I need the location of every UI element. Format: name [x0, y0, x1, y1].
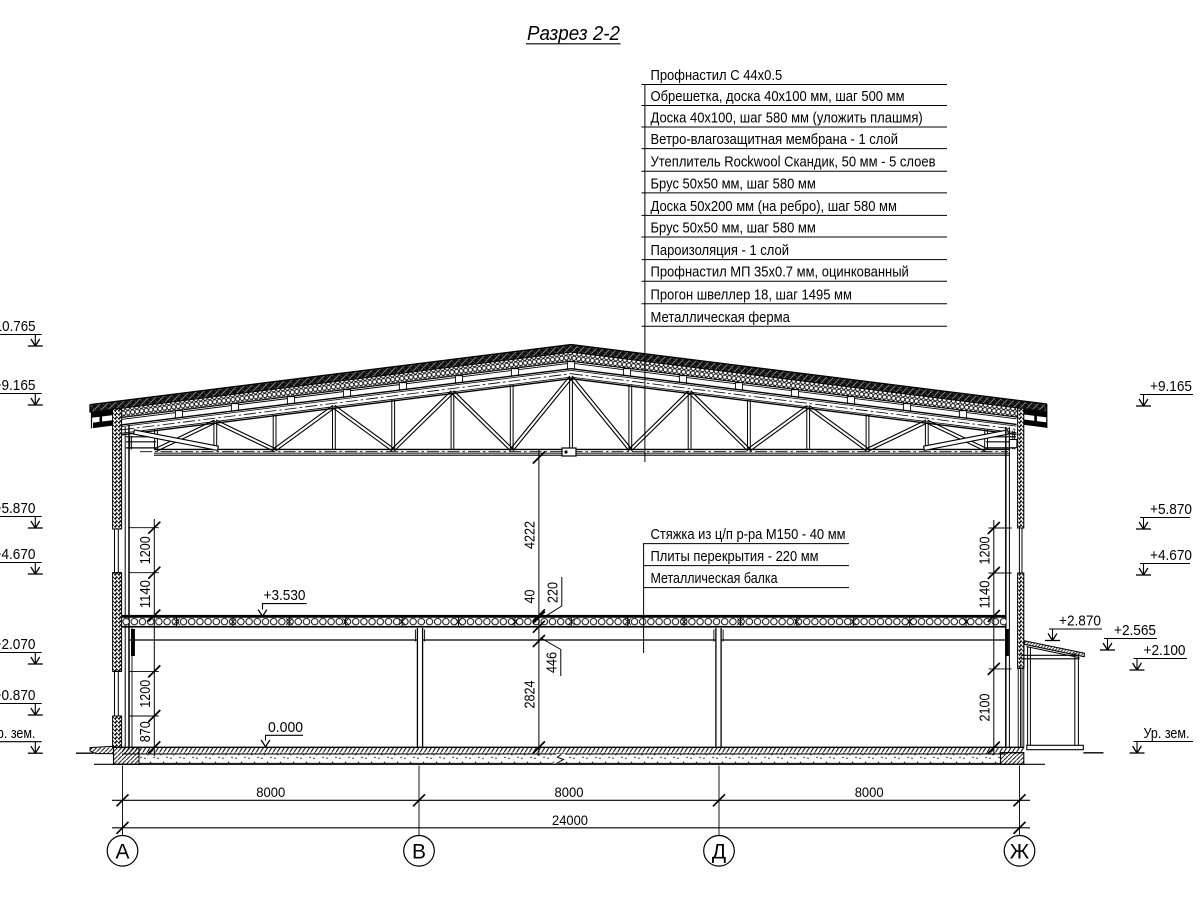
- svg-text:8000: 8000: [855, 784, 884, 800]
- svg-text:+0.870: +0.870: [0, 687, 36, 704]
- svg-text:Ветро-влагозащитная мембрана -: Ветро-влагозащитная мембрана - 1 слой: [651, 131, 899, 148]
- svg-text:1200: 1200: [976, 537, 993, 565]
- svg-text:1200: 1200: [137, 536, 154, 564]
- svg-text:Ур. зем.: Ур. зем.: [1144, 725, 1190, 742]
- svg-text:4222: 4222: [521, 521, 538, 549]
- svg-text:+10.765: +10.765: [0, 318, 36, 335]
- svg-text:+4.670: +4.670: [0, 546, 36, 563]
- svg-text:+2.100: +2.100: [1144, 642, 1186, 659]
- svg-text:1200: 1200: [137, 680, 154, 708]
- svg-text:220: 220: [544, 582, 561, 603]
- svg-text:+4.670: +4.670: [1150, 547, 1192, 564]
- svg-text:Профнастил МП 35х0.7 мм, оцинк: Профнастил МП 35х0.7 мм, оцинкованный: [651, 264, 909, 281]
- svg-text:Разрез 2-2: Разрез 2-2: [527, 23, 620, 45]
- svg-text:Доска 50х200 мм (на ребро), ша: Доска 50х200 мм (на ребро), шаг 580 мм: [651, 198, 897, 215]
- svg-text:+2.870: +2.870: [1059, 613, 1101, 630]
- svg-text:+9.165: +9.165: [0, 377, 36, 394]
- svg-text:8000: 8000: [555, 784, 584, 800]
- svg-text:Брус 50х50 мм, шаг 580 мм: Брус 50х50 мм, шаг 580 мм: [651, 175, 816, 192]
- svg-text:40: 40: [521, 590, 538, 604]
- svg-text:+5.870: +5.870: [0, 500, 36, 517]
- svg-text:Брус 50х50 мм, шаг 580 мм: Брус 50х50 мм, шаг 580 мм: [651, 220, 816, 237]
- svg-text:Д: Д: [712, 840, 726, 863]
- svg-text:446: 446: [543, 652, 560, 673]
- svg-text:А: А: [115, 840, 129, 863]
- svg-text:Доска 40х100, шаг 580 мм (улож: Доска 40х100, шаг 580 мм (уложить плашмя…: [651, 110, 923, 127]
- svg-text:1140: 1140: [137, 580, 154, 608]
- svg-text:Стяжка из ц/п р-ра М150 - 40 м: Стяжка из ц/п р-ра М150 - 40 мм: [651, 526, 846, 543]
- svg-text:+5.870: +5.870: [1150, 501, 1192, 518]
- svg-text:+2.070: +2.070: [0, 636, 36, 653]
- svg-text:Ур. зем.: Ур. зем.: [0, 725, 36, 742]
- svg-text:Металлическая ферма: Металлическая ферма: [651, 309, 791, 326]
- svg-text:870: 870: [137, 721, 154, 742]
- svg-text:2824: 2824: [521, 681, 538, 709]
- svg-text:0.000: 0.000: [268, 719, 303, 736]
- svg-text:Прогон швеллер 18, шаг 1495 мм: Прогон швеллер 18, шаг 1495 мм: [651, 286, 852, 303]
- svg-text:Ж: Ж: [1010, 840, 1030, 863]
- svg-text:8000: 8000: [256, 784, 285, 800]
- svg-text:Обрешетка, доска 40х100 мм, ша: Обрешетка, доска 40х100 мм, шаг 500 мм: [651, 88, 905, 105]
- svg-text:1140: 1140: [976, 581, 993, 609]
- svg-text:Пароизоляция - 1 слой: Пароизоляция - 1 слой: [651, 242, 790, 259]
- svg-text:+9.165: +9.165: [1150, 378, 1192, 395]
- svg-text:24000: 24000: [552, 812, 588, 828]
- svg-text:Профнастил С 44х0.5: Профнастил С 44х0.5: [651, 67, 783, 84]
- svg-text:В: В: [412, 840, 426, 863]
- svg-text:Утеплитель Rockwool Скандик, 5: Утеплитель Rockwool Скандик, 50 мм - 5 с…: [651, 154, 936, 171]
- svg-text:2100: 2100: [976, 694, 993, 722]
- svg-text:+2.565: +2.565: [1114, 622, 1156, 639]
- svg-text:Плиты перекрытия - 220 мм: Плиты перекрытия - 220 мм: [651, 548, 819, 565]
- svg-text:+3.530: +3.530: [264, 587, 306, 604]
- svg-text:Металлическая балка: Металлическая балка: [651, 570, 779, 587]
